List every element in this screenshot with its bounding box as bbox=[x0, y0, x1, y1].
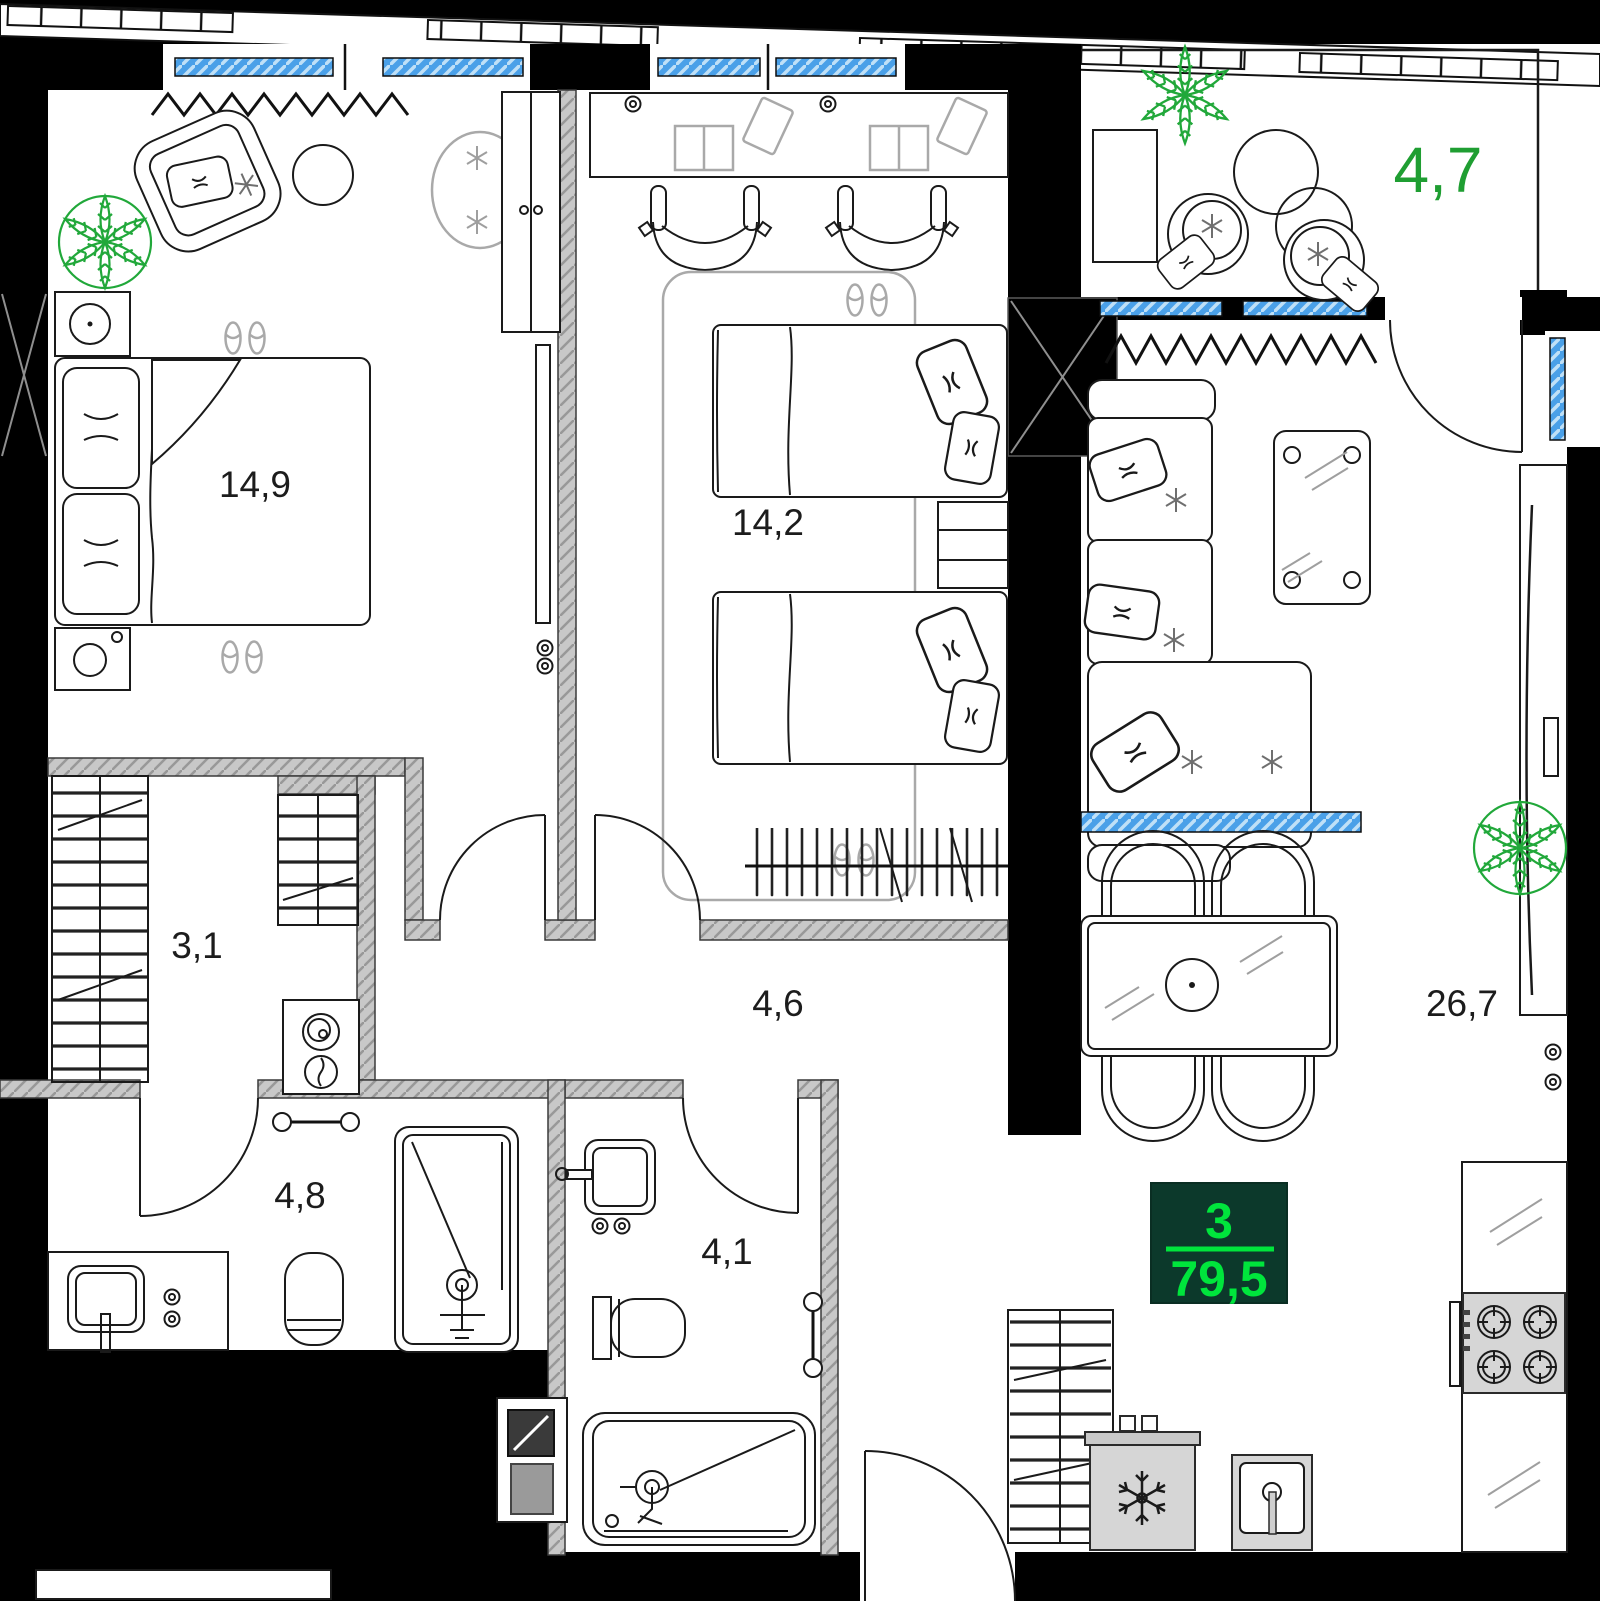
pillow-icon bbox=[63, 368, 139, 488]
round-chair-icon bbox=[1154, 194, 1248, 292]
door-swing-icon bbox=[440, 815, 545, 920]
door-pier bbox=[1520, 290, 1567, 335]
entry bbox=[860, 1451, 1015, 1601]
nightstand-icon bbox=[938, 502, 1008, 588]
room-area-label: 26,7 bbox=[1426, 983, 1498, 1024]
kitchen-sink-icon bbox=[1232, 1455, 1312, 1550]
utility-box bbox=[497, 1398, 567, 1522]
single-bed-icon bbox=[713, 592, 1007, 764]
vanity-icon bbox=[48, 1252, 228, 1352]
room-area-label: 4,1 bbox=[701, 1231, 752, 1272]
door-swing-icon bbox=[595, 815, 700, 920]
coat-rack-icon bbox=[745, 828, 1008, 902]
double-bed-icon bbox=[55, 358, 370, 625]
side-table-icon bbox=[293, 145, 353, 205]
room-area-label: 4,8 bbox=[274, 1175, 325, 1216]
door-swing-icon bbox=[1390, 320, 1522, 452]
balcony-windows bbox=[1100, 297, 1522, 320]
sink-icon bbox=[556, 1140, 655, 1234]
balcony-table-icon bbox=[1234, 130, 1318, 214]
southwest-wall-block bbox=[0, 1350, 548, 1601]
room-wc: 4,1 bbox=[556, 1140, 822, 1545]
coffee-table-icon bbox=[1274, 431, 1370, 604]
room-area-label: 4,7 bbox=[1394, 134, 1483, 206]
room-balcony: 4,7 bbox=[1093, 47, 1482, 315]
radiator-icon bbox=[152, 94, 408, 115]
east-window bbox=[1545, 331, 1600, 447]
bathtub-icon bbox=[583, 1413, 815, 1545]
room-area-label: 14,9 bbox=[219, 464, 291, 505]
utility-niche bbox=[278, 795, 359, 1094]
room-wardrobe: 3,1 bbox=[52, 776, 223, 1082]
plant-icon bbox=[59, 196, 151, 288]
single-bed-icon bbox=[713, 325, 1007, 497]
room-bathroom: 4,8 bbox=[48, 1113, 518, 1352]
pillow-icon bbox=[63, 494, 139, 614]
neighbor-corridor bbox=[36, 1570, 331, 1599]
badge-total-area: 79,5 bbox=[1170, 1251, 1267, 1307]
toilet-icon bbox=[593, 1297, 685, 1359]
east-wall bbox=[1567, 297, 1600, 1601]
door-swing-icon bbox=[140, 1098, 258, 1216]
floor-plan: 14,9 1 bbox=[0, 0, 1600, 1601]
window-glass-icon bbox=[383, 58, 523, 76]
window-glass-icon bbox=[776, 58, 896, 76]
unit-info-badge: 3 79,5 bbox=[1151, 1183, 1287, 1307]
room-bedroom-1: 14,9 bbox=[55, 92, 560, 690]
room-living-kitchen: 26,7 bbox=[1008, 336, 1567, 1552]
window-glass-icon bbox=[1550, 338, 1565, 440]
door-swing-icon bbox=[683, 1098, 798, 1213]
window-glass-icon bbox=[658, 58, 760, 76]
wardrobe-hangers-icon bbox=[278, 795, 358, 925]
glass-partition bbox=[1081, 812, 1361, 832]
washing-machine-icon bbox=[283, 1000, 359, 1094]
tv-console bbox=[1520, 465, 1567, 1015]
south-wall bbox=[548, 1552, 1600, 1601]
toilet-icon bbox=[285, 1253, 343, 1345]
radiator-icon bbox=[1106, 336, 1376, 363]
stove-burners-icon bbox=[1450, 1293, 1565, 1393]
socket-icon bbox=[615, 1219, 630, 1234]
window-glass-icon bbox=[175, 58, 333, 76]
desk-chair-icon bbox=[639, 186, 771, 270]
socket-icon bbox=[538, 641, 553, 656]
wardrobe-hangers-icon bbox=[52, 776, 148, 1082]
desk-chair-icon bbox=[826, 186, 958, 270]
room-area-label: 3,1 bbox=[171, 925, 222, 966]
structural-walls bbox=[0, 0, 1600, 1601]
room-area-label: 4,6 bbox=[752, 983, 803, 1024]
socket-icon bbox=[1546, 1045, 1561, 1060]
nightstand-icon bbox=[55, 628, 130, 690]
socket-icon bbox=[593, 1219, 608, 1234]
socket-icon bbox=[538, 659, 553, 674]
room-area-label: 14,2 bbox=[732, 502, 804, 543]
desk-icon bbox=[590, 93, 1008, 177]
badge-rooms-count: 3 bbox=[1205, 1193, 1233, 1249]
dining-table-icon bbox=[1081, 916, 1337, 1056]
tv-icon bbox=[536, 345, 550, 623]
shower-icon bbox=[395, 1127, 518, 1352]
wardrobe-icon bbox=[502, 92, 560, 332]
towel-rail bbox=[804, 1293, 822, 1377]
room-bedroom-2: 14,2 bbox=[590, 93, 1008, 902]
balcony-cabinet bbox=[1093, 130, 1157, 262]
towel-rail bbox=[273, 1113, 359, 1131]
west-wall bbox=[0, 44, 48, 1350]
center-wall-column bbox=[1008, 44, 1081, 1135]
window-glass-icon bbox=[1100, 301, 1222, 316]
floor-plan-page: 14,9 1 bbox=[0, 0, 1600, 1601]
socket-icon bbox=[1546, 1075, 1561, 1090]
nightstand-icon bbox=[55, 292, 130, 356]
fridge-snowflake-icon bbox=[1085, 1416, 1200, 1550]
